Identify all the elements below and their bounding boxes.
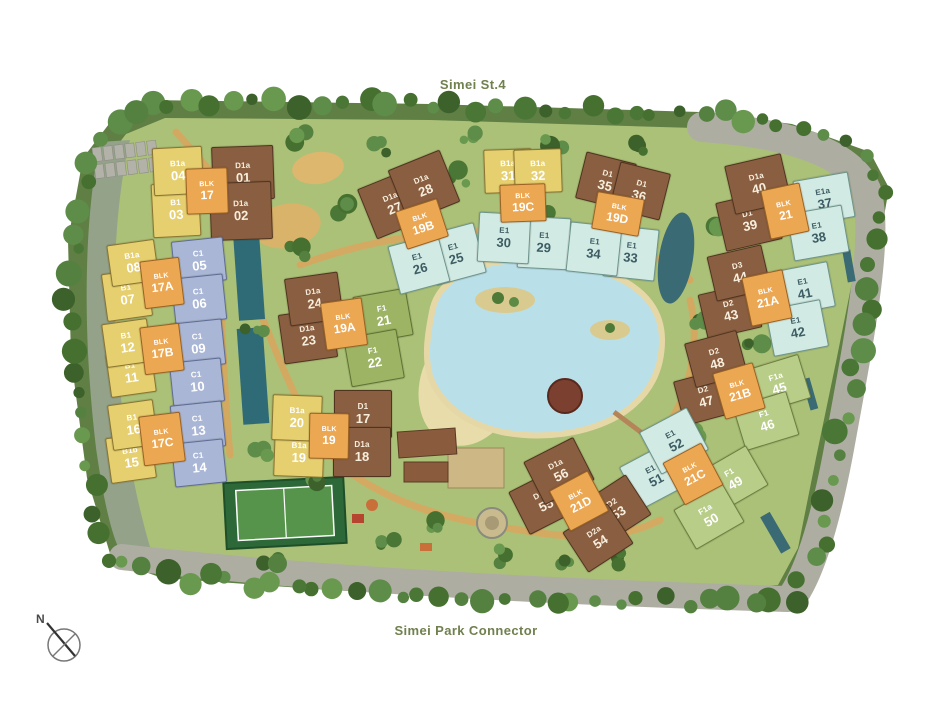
bottom-road-label: Simei Park Connector xyxy=(366,623,566,638)
block-number: 17B xyxy=(151,346,174,361)
stack-number: 32 xyxy=(531,169,546,183)
north-compass: N xyxy=(30,608,94,672)
stack-number: 21 xyxy=(376,313,393,329)
block-number: 19D xyxy=(605,210,629,226)
block-17C: BLK17C xyxy=(138,412,186,467)
stack-number: 29 xyxy=(536,241,551,255)
stack-number: 07 xyxy=(120,292,136,307)
stack-number: 33 xyxy=(623,250,639,265)
stack-number: 19 xyxy=(291,451,306,465)
stack-number: 14 xyxy=(192,460,208,475)
stack-number: 39 xyxy=(741,217,758,233)
stack-number: 30 xyxy=(496,236,511,250)
stack-number: 13 xyxy=(191,423,207,438)
stack-number: 22 xyxy=(367,355,384,371)
stack-number: 41 xyxy=(797,286,814,302)
block-17: BLK17 xyxy=(185,167,229,214)
block-17B: BLK17B xyxy=(139,323,185,376)
block-19: BLK19 xyxy=(309,413,350,460)
stack-number: 23 xyxy=(301,333,317,348)
block-number: 19 xyxy=(322,434,336,446)
block-number: 19A xyxy=(333,320,357,335)
stack-number: 46 xyxy=(758,417,776,434)
stack-number: 26 xyxy=(411,260,428,277)
top-road-label: Simei St.4 xyxy=(398,77,548,92)
stack-number: 42 xyxy=(790,325,807,341)
stack-number: 18 xyxy=(355,450,369,463)
stack-number: 05 xyxy=(192,258,208,273)
stack-number: 25 xyxy=(447,250,464,267)
stack-number: 20 xyxy=(289,416,304,430)
stack-number: 34 xyxy=(586,246,602,261)
stack-number: 28 xyxy=(417,181,435,199)
stack-number: 38 xyxy=(811,230,828,246)
block-number: 17 xyxy=(200,189,214,202)
block-number: 21 xyxy=(778,208,794,223)
stack-number: 11 xyxy=(124,370,139,385)
stack-number: 02 xyxy=(234,209,249,223)
site-plan: D1a01D1a02B103B1a04C105C106B107B1a08C109… xyxy=(0,0,943,717)
stack-number: 48 xyxy=(708,355,725,372)
building-stacks-layer: D1a01D1a02B103B1a04C105C106B107B1a08C109… xyxy=(0,0,943,717)
stack-type: D1 xyxy=(358,403,369,411)
stack-number: 10 xyxy=(190,379,206,394)
compass-north-letter: N xyxy=(36,612,45,626)
stack-number: 03 xyxy=(169,208,184,222)
stack-number: 43 xyxy=(722,307,739,323)
block-number: 17A xyxy=(151,280,174,295)
block-19A: BLK19A xyxy=(320,297,368,350)
stack-number: 06 xyxy=(192,296,208,311)
block-17A: BLK17A xyxy=(139,257,185,310)
block-19D: BLK19D xyxy=(591,191,645,237)
block-number: 21A xyxy=(756,294,780,311)
stack-number: 17 xyxy=(356,412,370,425)
block-19C: BLK19C xyxy=(499,183,546,223)
block-number: 19C xyxy=(512,201,534,214)
stack-number: 09 xyxy=(191,341,207,356)
stack-number: 12 xyxy=(120,340,136,355)
stack-number: 15 xyxy=(124,455,140,470)
block-number: 17C xyxy=(151,436,174,451)
stack-type: D1a xyxy=(354,441,369,449)
stack-number: 04 xyxy=(171,169,186,183)
stack-number: 47 xyxy=(697,393,714,410)
